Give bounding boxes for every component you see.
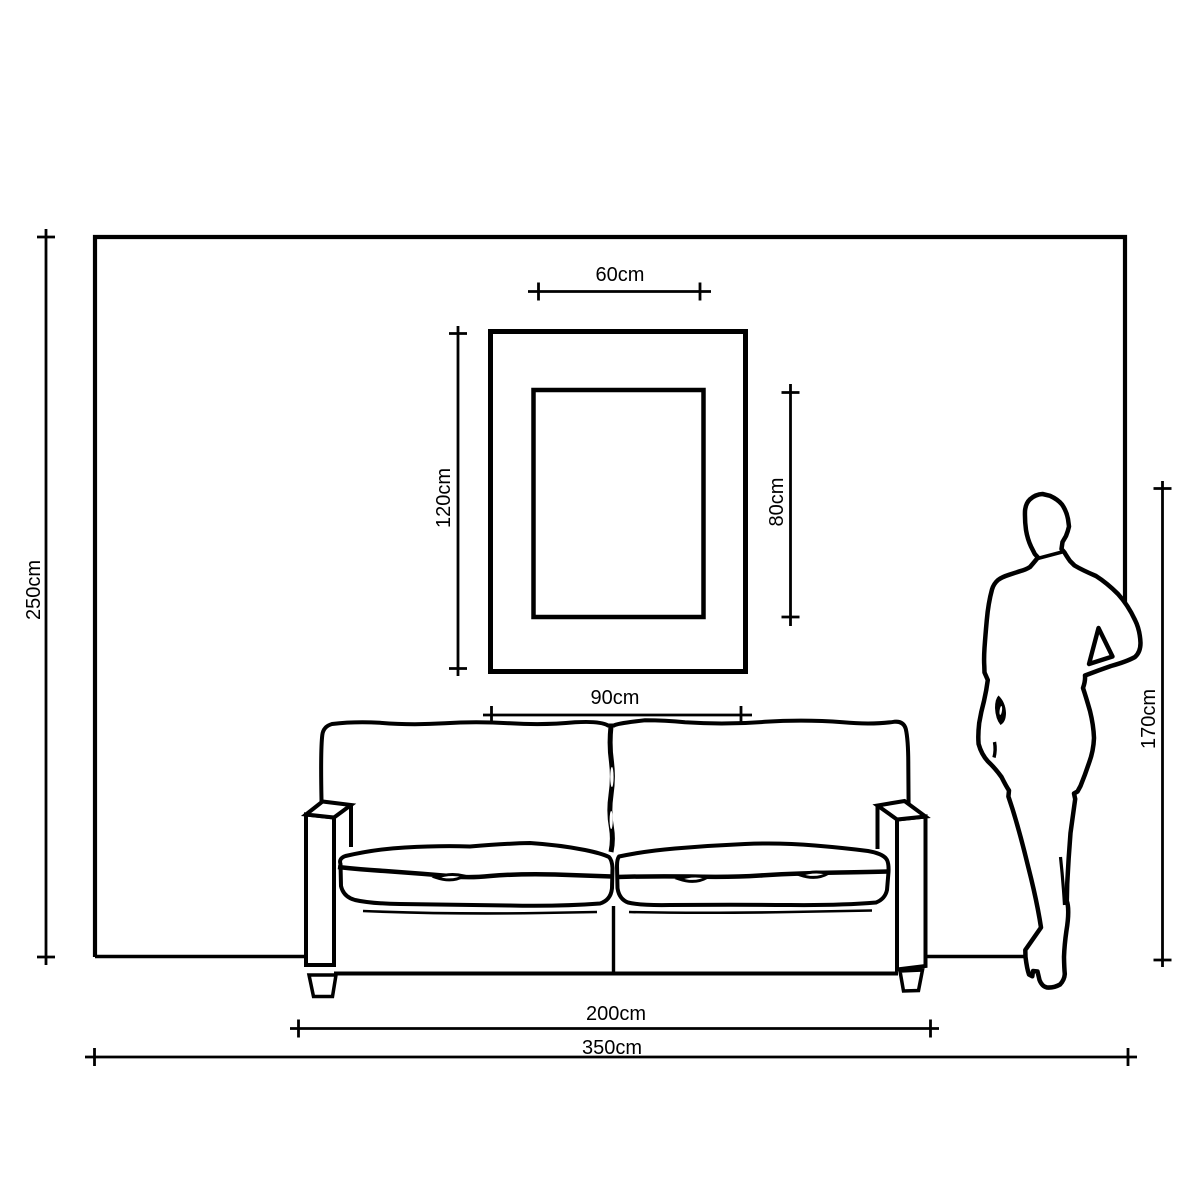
svg-text:170cm: 170cm: [1138, 689, 1160, 749]
svg-text:80cm: 80cm: [766, 478, 788, 527]
svg-text:200cm: 200cm: [586, 1003, 646, 1025]
svg-text:350cm: 350cm: [582, 1037, 642, 1059]
svg-text:90cm: 90cm: [591, 687, 640, 709]
svg-text:120cm: 120cm: [433, 468, 455, 528]
svg-text:250cm: 250cm: [23, 560, 45, 620]
svg-text:60cm: 60cm: [596, 264, 645, 286]
